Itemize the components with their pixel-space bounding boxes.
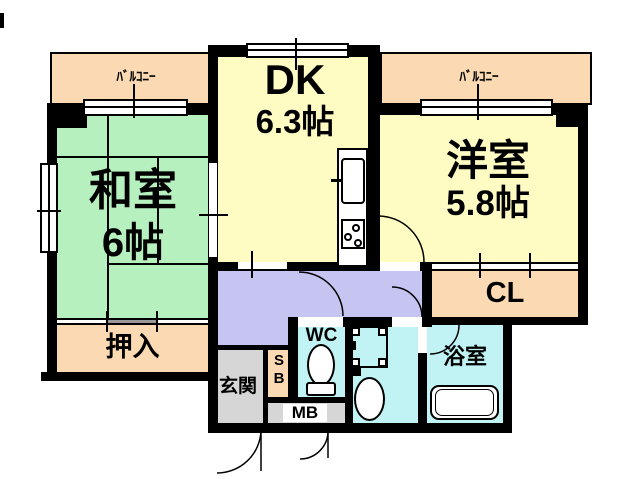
toilet-tank <box>306 382 336 396</box>
tick <box>251 251 253 278</box>
western-room-size-label: 5.8帖 <box>408 186 568 223</box>
toilet-bowl <box>307 344 335 386</box>
shoe-box-label: SB <box>271 352 287 388</box>
dk-size-label: 6.3帖 <box>225 105 365 140</box>
bathroom-label: 浴室 <box>427 345 503 368</box>
kitchen-sink <box>341 158 365 204</box>
washer-pan-corner <box>378 327 387 336</box>
entrance-door-arc <box>217 431 261 473</box>
washer-pan-corner <box>351 358 360 367</box>
door-arc-western <box>378 216 424 262</box>
tick <box>133 84 135 118</box>
kitchen-faucet <box>331 179 341 182</box>
washer-pan-corner <box>351 327 360 336</box>
balcony-left-label: ﾊﾞﾙｺﾆｰ <box>90 70 182 84</box>
balcony-right-label: ﾊﾞﾙｺﾆｰ <box>433 70 525 84</box>
floor-plan: ﾊﾞﾙｺﾆｰ ﾊﾞﾙｺﾆｰ DK 6.3帖 洋室 5.8帖 和室 6帖 押入 C… <box>0 0 640 479</box>
tick <box>156 311 158 332</box>
oshiire-label: 押入 <box>75 333 190 361</box>
meter-box-label: MB <box>283 404 327 422</box>
wash-basin <box>354 377 385 421</box>
washer-tap <box>349 341 356 350</box>
tick <box>477 84 479 120</box>
stove-burner <box>354 239 362 247</box>
tick <box>106 311 108 332</box>
door-arc-washroom <box>392 287 422 317</box>
washer-pan-corner <box>378 358 387 367</box>
tick <box>199 214 228 216</box>
tick <box>37 210 61 212</box>
cl-label: CL <box>470 278 540 308</box>
stove-burner <box>344 233 352 241</box>
stove-burner <box>352 224 360 232</box>
entrance-door-arc2 <box>300 431 328 459</box>
tick <box>479 253 481 278</box>
tick <box>529 253 531 278</box>
japanese-room-label: 和室 <box>63 168 203 214</box>
western-room-label: 洋室 <box>408 139 568 183</box>
japanese-room-size-label: 6帖 <box>63 222 203 264</box>
entrance-label: 玄関 <box>213 377 263 397</box>
door-arc-wc <box>299 272 343 316</box>
basin-faucet <box>352 367 361 376</box>
bathtub-inner <box>435 389 494 416</box>
dk-label: DK <box>245 58 345 102</box>
wc-label: WC <box>298 326 345 346</box>
